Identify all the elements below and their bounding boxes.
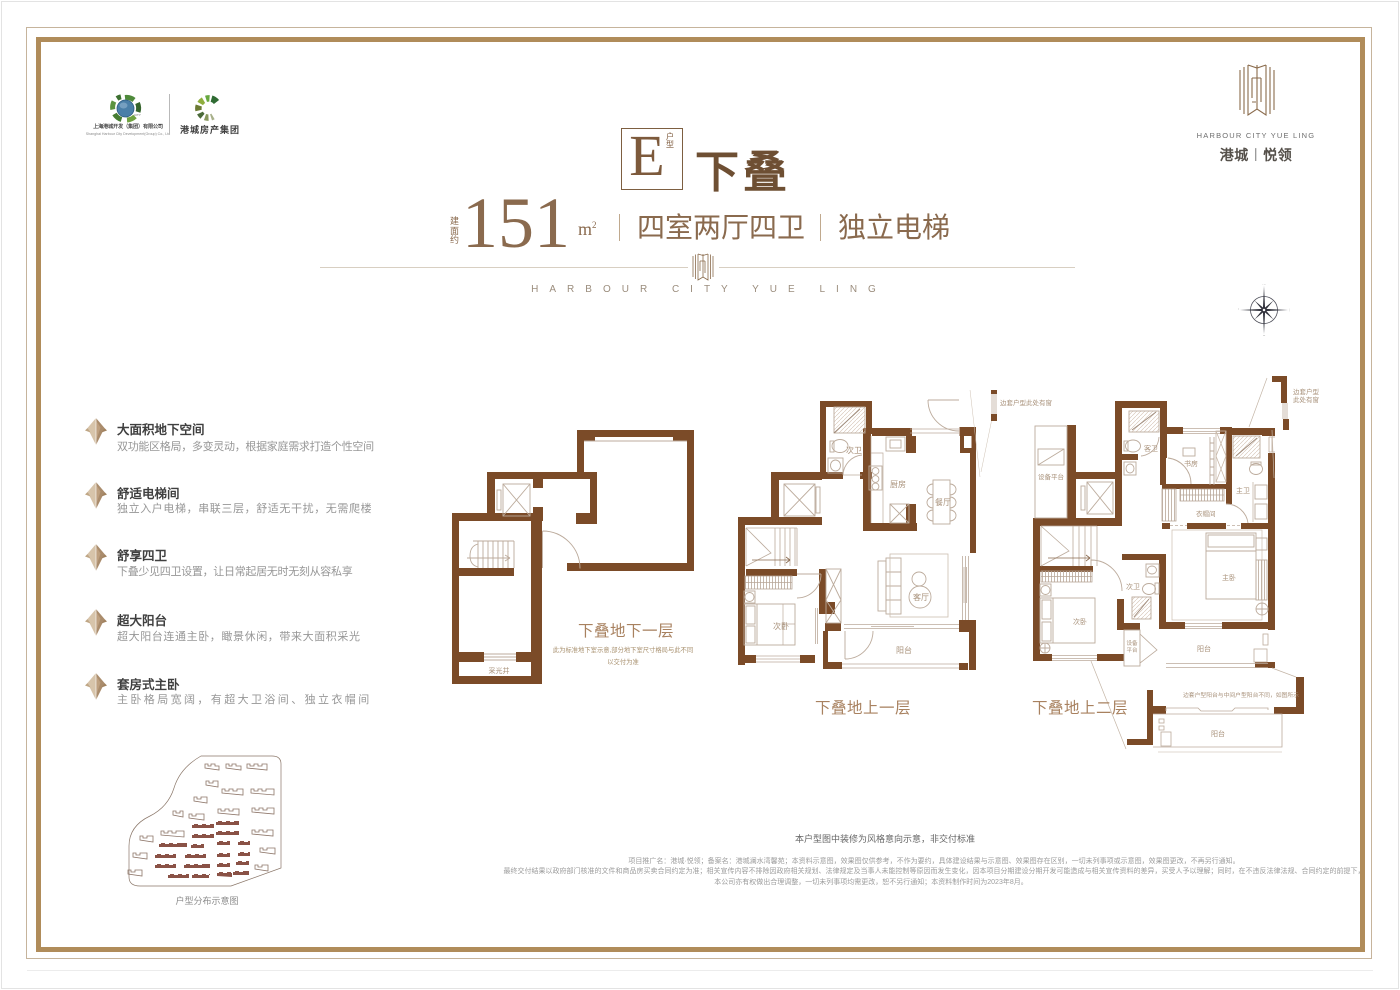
svg-text:下叠地上二层: 下叠地上二层 (1032, 699, 1128, 717)
svg-text:S: S (1262, 335, 1265, 337)
svg-text:平台: 平台 (1126, 646, 1138, 654)
svg-text:边套户型阳台与中间户型阳台不同，如图所示: 边套户型阳台与中间户型阳台不同，如图所示 (1183, 691, 1299, 699)
svg-text:阳台: 阳台 (896, 645, 912, 655)
svg-text:次卧: 次卧 (1073, 617, 1087, 626)
svg-text:餐厅: 餐厅 (935, 498, 951, 507)
svg-text:采光井: 采光井 (489, 666, 510, 675)
svg-text:厨房: 厨房 (890, 479, 906, 489)
svg-text:次卫: 次卫 (846, 445, 862, 455)
svg-text:此处有窗: 此处有窗 (1293, 395, 1319, 404)
svg-text:阳台: 阳台 (1211, 729, 1225, 738)
svg-text:客厅: 客厅 (913, 592, 929, 602)
svg-text:N: N (1262, 284, 1265, 286)
svg-text:阳台: 阳台 (1197, 644, 1211, 653)
svg-text:衣帽间: 衣帽间 (1196, 509, 1216, 518)
svg-text:主卫: 主卫 (1236, 486, 1250, 495)
svg-text:W: W (1238, 308, 1239, 313)
svg-text:下叠地上一层: 下叠地上一层 (815, 699, 911, 717)
svg-text:主卧: 主卧 (1222, 573, 1236, 582)
svg-text:书房: 书房 (1184, 459, 1198, 468)
svg-text:户型分布示意图: 户型分布示意图 (175, 895, 238, 906)
svg-text:此为标准地下室示意,部分地下室尺寸格局与此不同: 此为标准地下室示意,部分地下室尺寸格局与此不同 (553, 645, 693, 654)
svg-text:E: E (1290, 308, 1291, 313)
svg-text:下叠地下一层: 下叠地下一层 (578, 622, 674, 640)
svg-text:设备: 设备 (1126, 639, 1138, 647)
svg-text:次卧: 次卧 (773, 621, 789, 631)
svg-text:CITY: CITY (134, 113, 141, 117)
svg-text:客卫: 客卫 (1144, 444, 1158, 453)
svg-text:以交付为准: 以交付为准 (607, 657, 638, 666)
svg-text:设备平台: 设备平台 (1038, 472, 1064, 481)
svg-text:边套户型: 边套户型 (1293, 387, 1320, 396)
svg-text:次卫: 次卫 (1126, 582, 1140, 591)
